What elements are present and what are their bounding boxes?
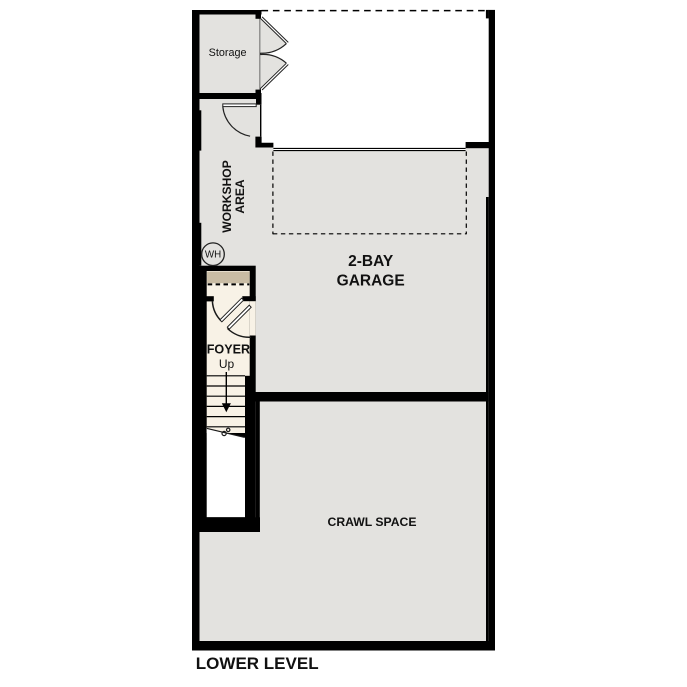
svg-text:2-BAY: 2-BAY <box>348 253 394 270</box>
svg-text:LOWER LEVEL: LOWER LEVEL <box>196 654 319 673</box>
svg-text:WH: WH <box>205 250 221 261</box>
svg-text:Up: Up <box>219 357 235 371</box>
svg-text:GARAGE: GARAGE <box>337 272 405 289</box>
svg-text:AREA: AREA <box>233 179 247 214</box>
svg-text:Storage: Storage <box>209 47 247 59</box>
svg-text:FOYER: FOYER <box>207 343 250 357</box>
svg-text:CRAWL SPACE: CRAWL SPACE <box>328 515 417 529</box>
